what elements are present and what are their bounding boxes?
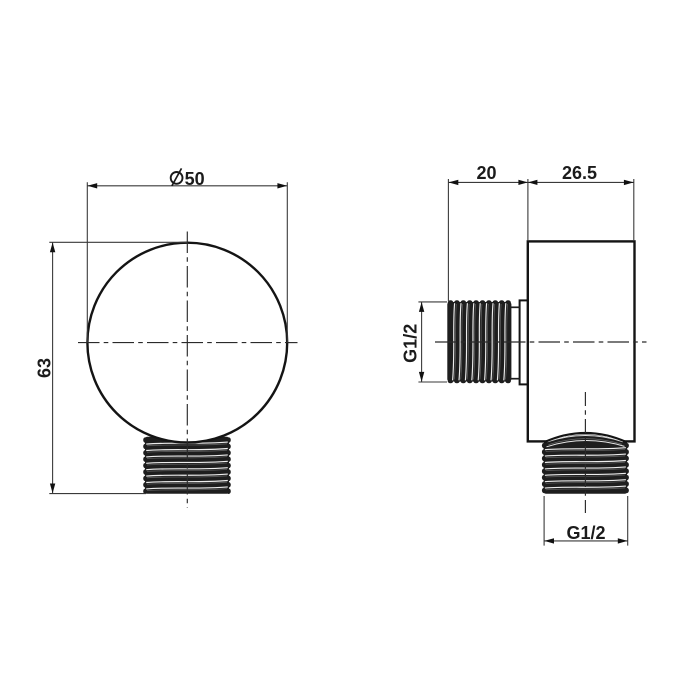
svg-text:G1/2: G1/2 — [401, 324, 421, 363]
svg-text:G1/2: G1/2 — [566, 523, 605, 543]
svg-text:20: 20 — [476, 163, 496, 183]
svg-text:26.5: 26.5 — [562, 163, 597, 183]
svg-text:63: 63 — [34, 358, 54, 378]
svg-text:50: 50 — [185, 169, 205, 189]
